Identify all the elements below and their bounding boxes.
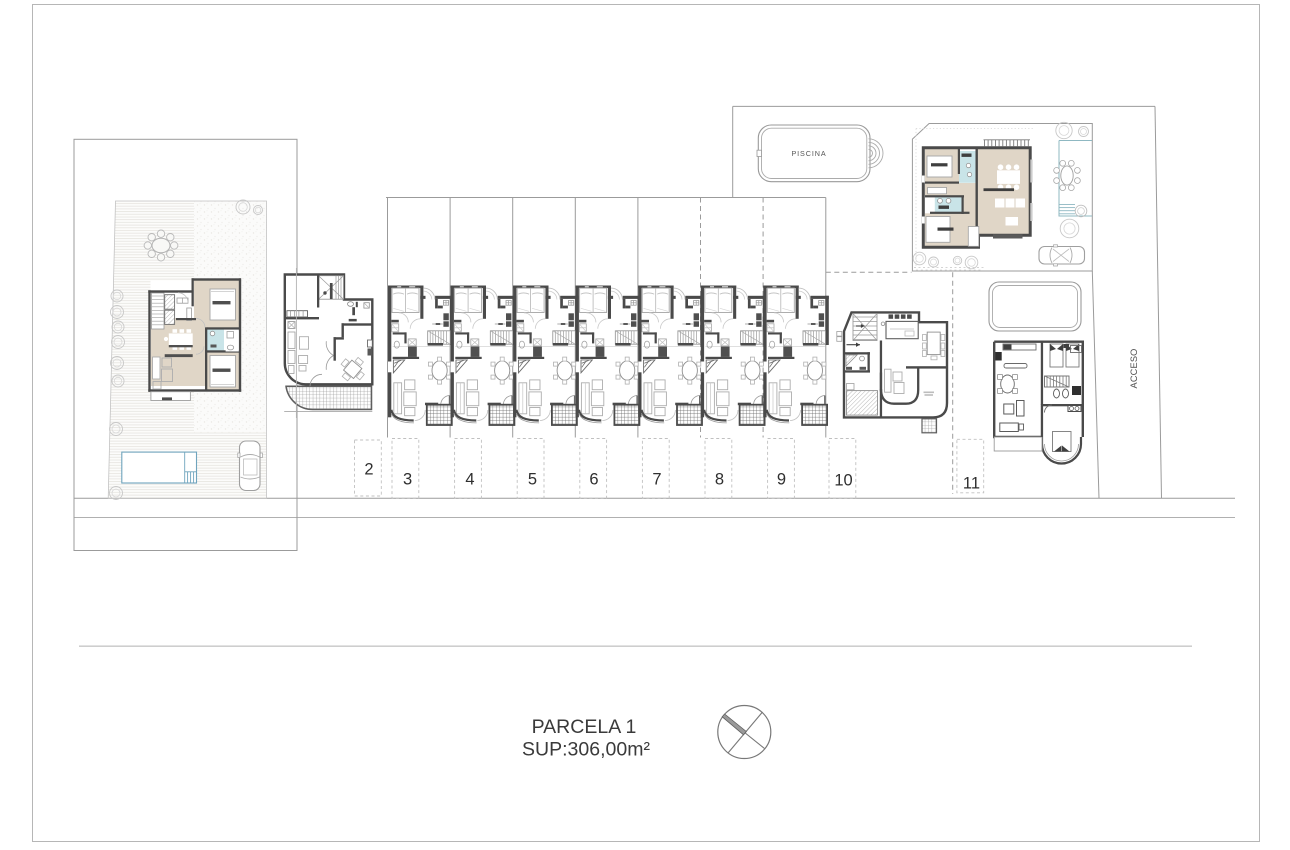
svg-text:8: 8: [715, 471, 724, 489]
svg-text:ACCESO: ACCESO: [1129, 348, 1139, 388]
svg-text:4: 4: [465, 471, 474, 489]
svg-text:6: 6: [589, 471, 598, 489]
svg-text:5: 5: [528, 471, 537, 489]
svg-text:SUP:306,00m²: SUP:306,00m²: [522, 739, 650, 761]
svg-text:10: 10: [834, 472, 852, 490]
svg-text:PISCINA: PISCINA: [791, 149, 826, 158]
svg-text:9: 9: [777, 471, 786, 489]
svg-text:7: 7: [652, 471, 661, 489]
svg-text:3: 3: [403, 471, 412, 489]
svg-text:2: 2: [364, 461, 373, 479]
svg-text:PARCELA 1: PARCELA 1: [532, 716, 637, 738]
svg-text:11: 11: [963, 475, 980, 493]
